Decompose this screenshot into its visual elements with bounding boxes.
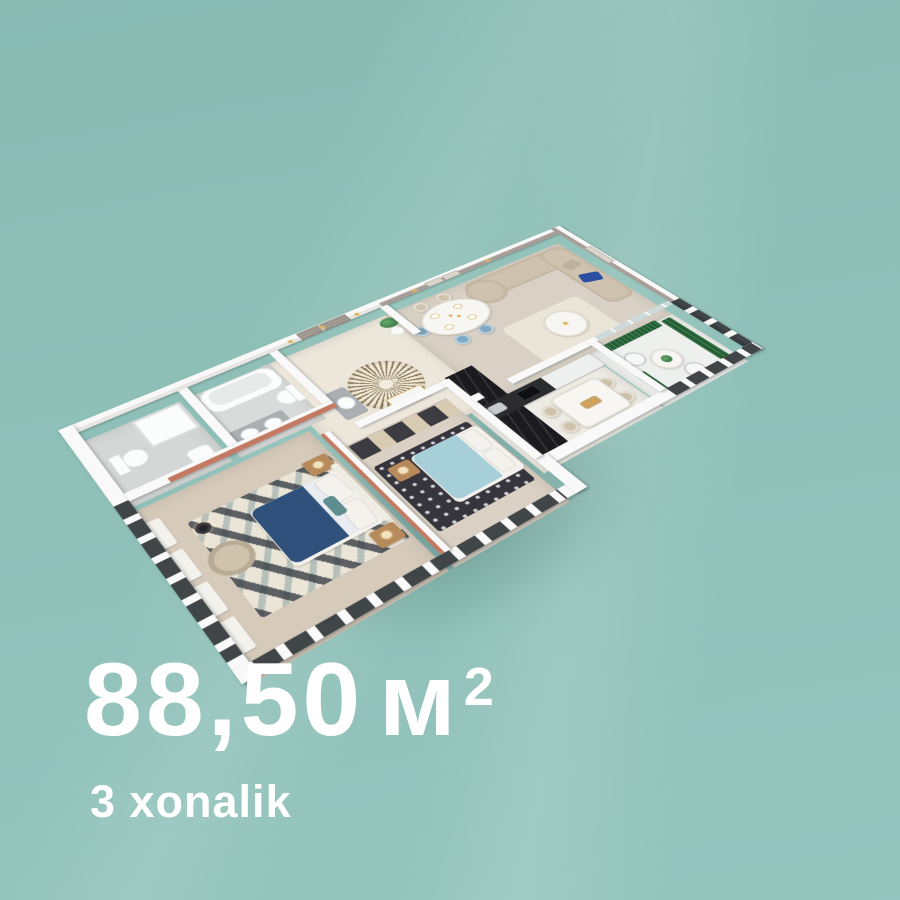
wall-sconce — [411, 289, 417, 292]
plate — [466, 313, 479, 320]
table-lamp — [312, 460, 325, 469]
area-value: 88,50 — [84, 642, 364, 758]
picture-frame — [424, 277, 445, 287]
plate — [428, 313, 441, 320]
area-unit: м — [379, 642, 460, 758]
table-lamp — [396, 466, 410, 475]
rooms-label: 3 xonalik — [84, 776, 498, 828]
table-lamp — [379, 530, 393, 541]
fruit-tray — [579, 395, 603, 410]
area-superscript: 2 — [464, 657, 498, 717]
caption: 88,50м2 3 xonalik — [84, 648, 498, 828]
table-decor — [562, 321, 568, 325]
plate — [451, 303, 464, 310]
potted-plant — [658, 354, 674, 364]
area-label: 88,50м2 — [84, 648, 498, 752]
wall-sconce — [485, 259, 491, 262]
picture-frame — [441, 270, 461, 280]
wall-sconce — [354, 313, 360, 317]
juice-glass — [448, 314, 453, 317]
poster-background: { "caption": { "area_value": "88,50", "a… — [0, 0, 900, 900]
wall-sconce — [287, 340, 294, 344]
picture-frame — [584, 246, 615, 264]
sink-basin — [333, 394, 359, 411]
plate — [443, 323, 456, 330]
juice-glass — [456, 314, 461, 317]
door-handle — [319, 325, 325, 329]
